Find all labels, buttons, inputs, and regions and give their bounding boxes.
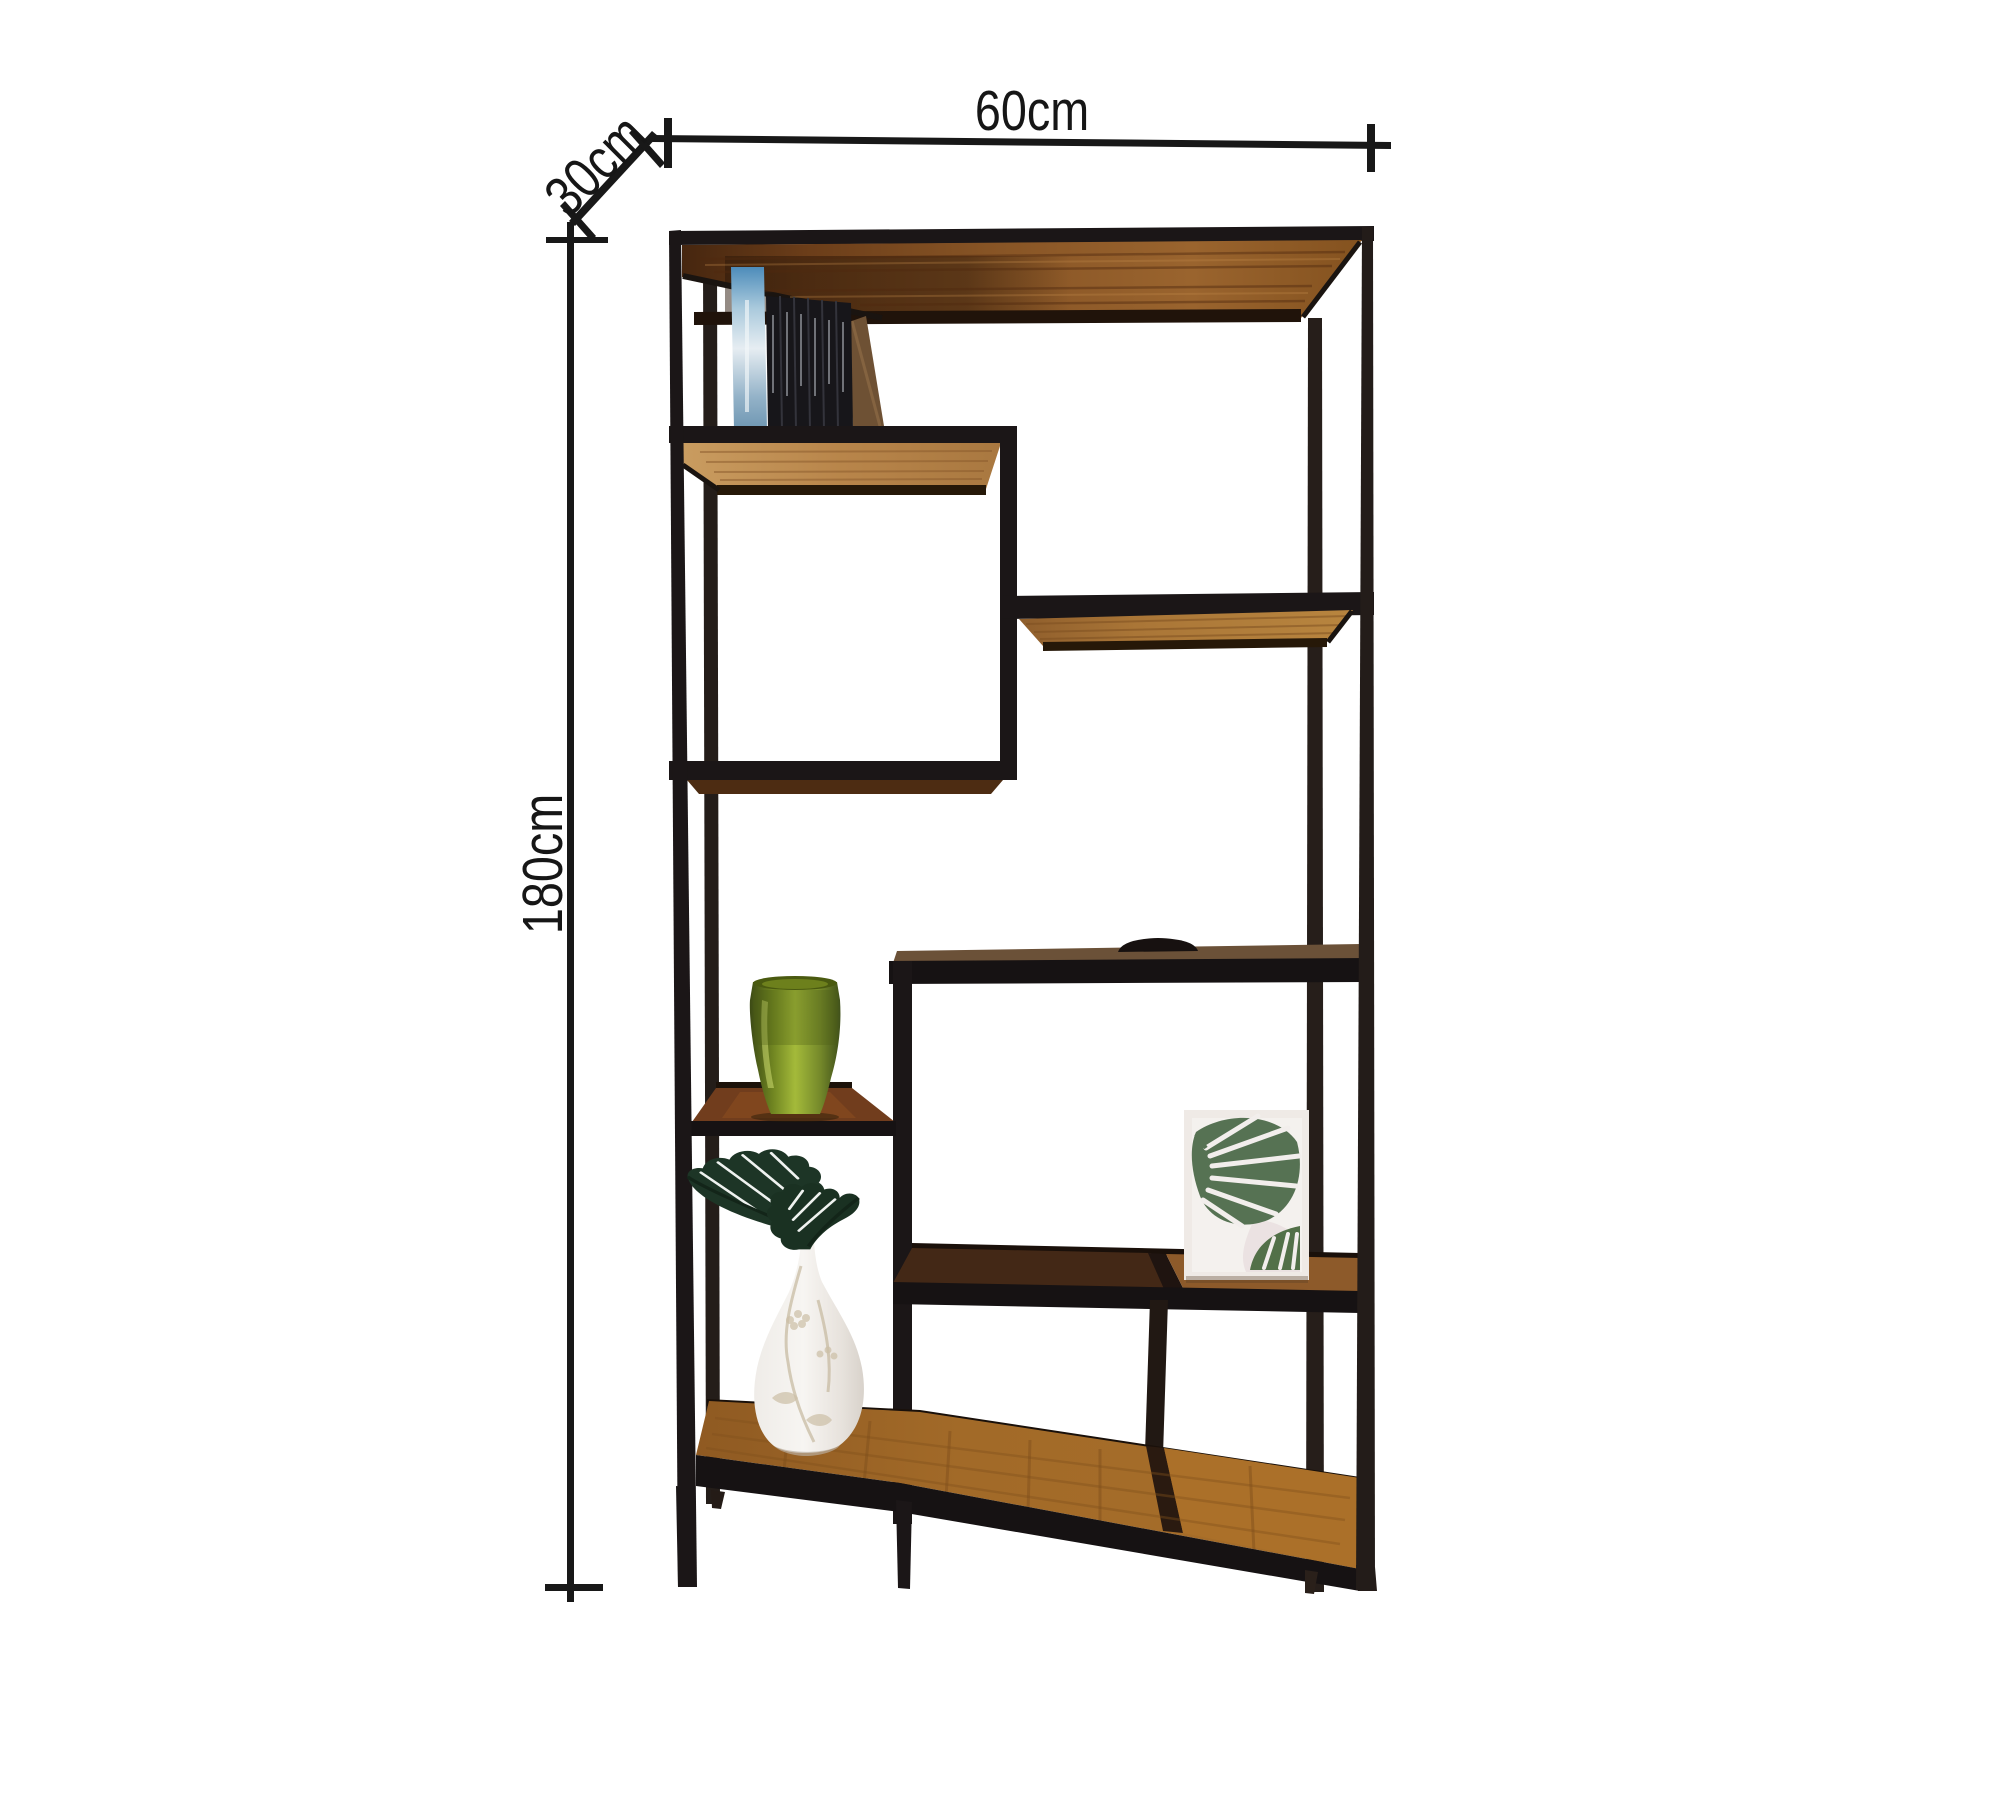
svg-text:60cm: 60cm bbox=[975, 80, 1089, 143]
svg-text:180cm: 180cm bbox=[512, 794, 575, 934]
